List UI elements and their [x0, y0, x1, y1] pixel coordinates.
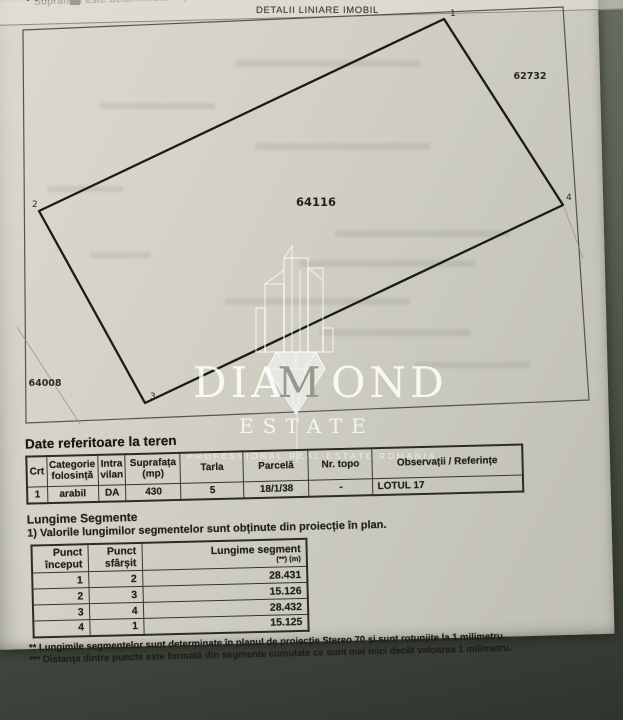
header-categorie: Categorie folosință	[46, 455, 98, 486]
cell-crt: 1	[27, 486, 47, 503]
header-intravilan: Intra vilan	[97, 454, 126, 485]
header-parcela: Parcelă	[243, 450, 309, 482]
seg2-to: 3	[89, 586, 143, 603]
seg4-from: 4	[33, 620, 89, 637]
punct-sfarsit-line2: sfârșit	[90, 557, 136, 570]
header-observatii-label: Observații / Referințe	[375, 454, 520, 469]
header-punct-inceput: Punct început	[31, 544, 88, 573]
punct-inceput-line2: început	[35, 558, 83, 571]
header-crt-label: Crt	[30, 466, 45, 478]
header-nr-topo: Nr. topo	[308, 448, 373, 480]
cell-categorie: arabil	[47, 485, 99, 503]
seg1-to: 2	[88, 570, 142, 587]
cell-nr-topo: -	[309, 478, 373, 497]
header-intravilan-line1: Intra	[100, 458, 123, 470]
photographed-cadastral-document: * Suprafața este determinată în pla DETA…	[0, 0, 623, 720]
cell-intravilan: DA	[98, 484, 126, 502]
header-punct-sfarsit: Punct sfârșit	[87, 543, 142, 572]
header-crt: Crt	[26, 456, 47, 486]
page-title: DETALII LINIARE IMOBIL	[256, 5, 379, 16]
cell-observatii: LOTUL 17	[373, 475, 523, 496]
header-suprafata-line1: Suprafața	[128, 457, 178, 470]
cell-tarla: 5	[181, 481, 244, 500]
header-tarla-label: Tarla	[183, 461, 241, 474]
header-observatii: Observații / Referințe	[372, 445, 523, 479]
header-intravilan-line2: vilan	[100, 470, 123, 482]
land-data-table: Crt Categorie folosință Intra vilan Supr…	[25, 444, 524, 505]
header-suprafata-line2: (mp)	[128, 468, 178, 481]
seg1-from: 1	[32, 572, 88, 589]
cell-suprafata: 430	[126, 483, 181, 501]
header-suprafata: Suprafața (mp)	[125, 453, 181, 484]
seg3-from: 3	[33, 604, 89, 621]
seg4-to: 1	[89, 618, 143, 635]
segments-table: Punct început Punct sfârșit Lungime segm…	[30, 538, 309, 638]
seg2-from: 2	[33, 588, 89, 605]
seg4-length: 15.125	[143, 614, 308, 634]
seg3-to: 4	[89, 602, 143, 619]
header-nr-topo-label: Nr. topo	[311, 458, 370, 471]
header-tarla: Tarla	[180, 451, 244, 483]
header-categorie-line2: folosință	[49, 470, 95, 483]
header-lungime-segment: Lungime segment (**) (m)	[141, 539, 307, 571]
punct-sfarsit-line1: Punct	[90, 545, 136, 558]
header-parcela-label: Parcelă	[246, 459, 306, 472]
tables-section: Date referitoare la teren Crt Categorie …	[0, 422, 623, 667]
cell-parcela: 18/1/38	[244, 480, 309, 499]
